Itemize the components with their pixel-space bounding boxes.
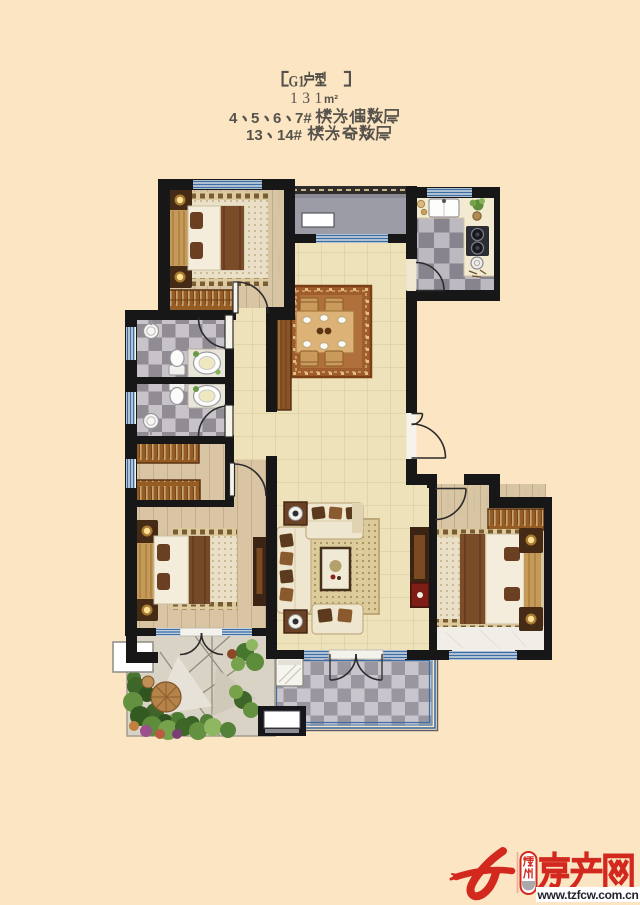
svg-text:13: 13 bbox=[246, 127, 263, 144]
svg-text:7#: 7# bbox=[295, 110, 312, 127]
svg-text:6: 6 bbox=[273, 110, 281, 127]
svg-text:131: 131 bbox=[290, 90, 327, 107]
svg-text:www.tzfcw.com.cn: www.tzfcw.com.cn bbox=[537, 888, 639, 902]
svg-text:4: 4 bbox=[229, 110, 238, 127]
svg-text:5: 5 bbox=[251, 110, 259, 127]
svg-text:m²: m² bbox=[324, 94, 338, 106]
svg-text:14#: 14# bbox=[277, 127, 303, 144]
svg-text:G1: G1 bbox=[289, 73, 305, 91]
